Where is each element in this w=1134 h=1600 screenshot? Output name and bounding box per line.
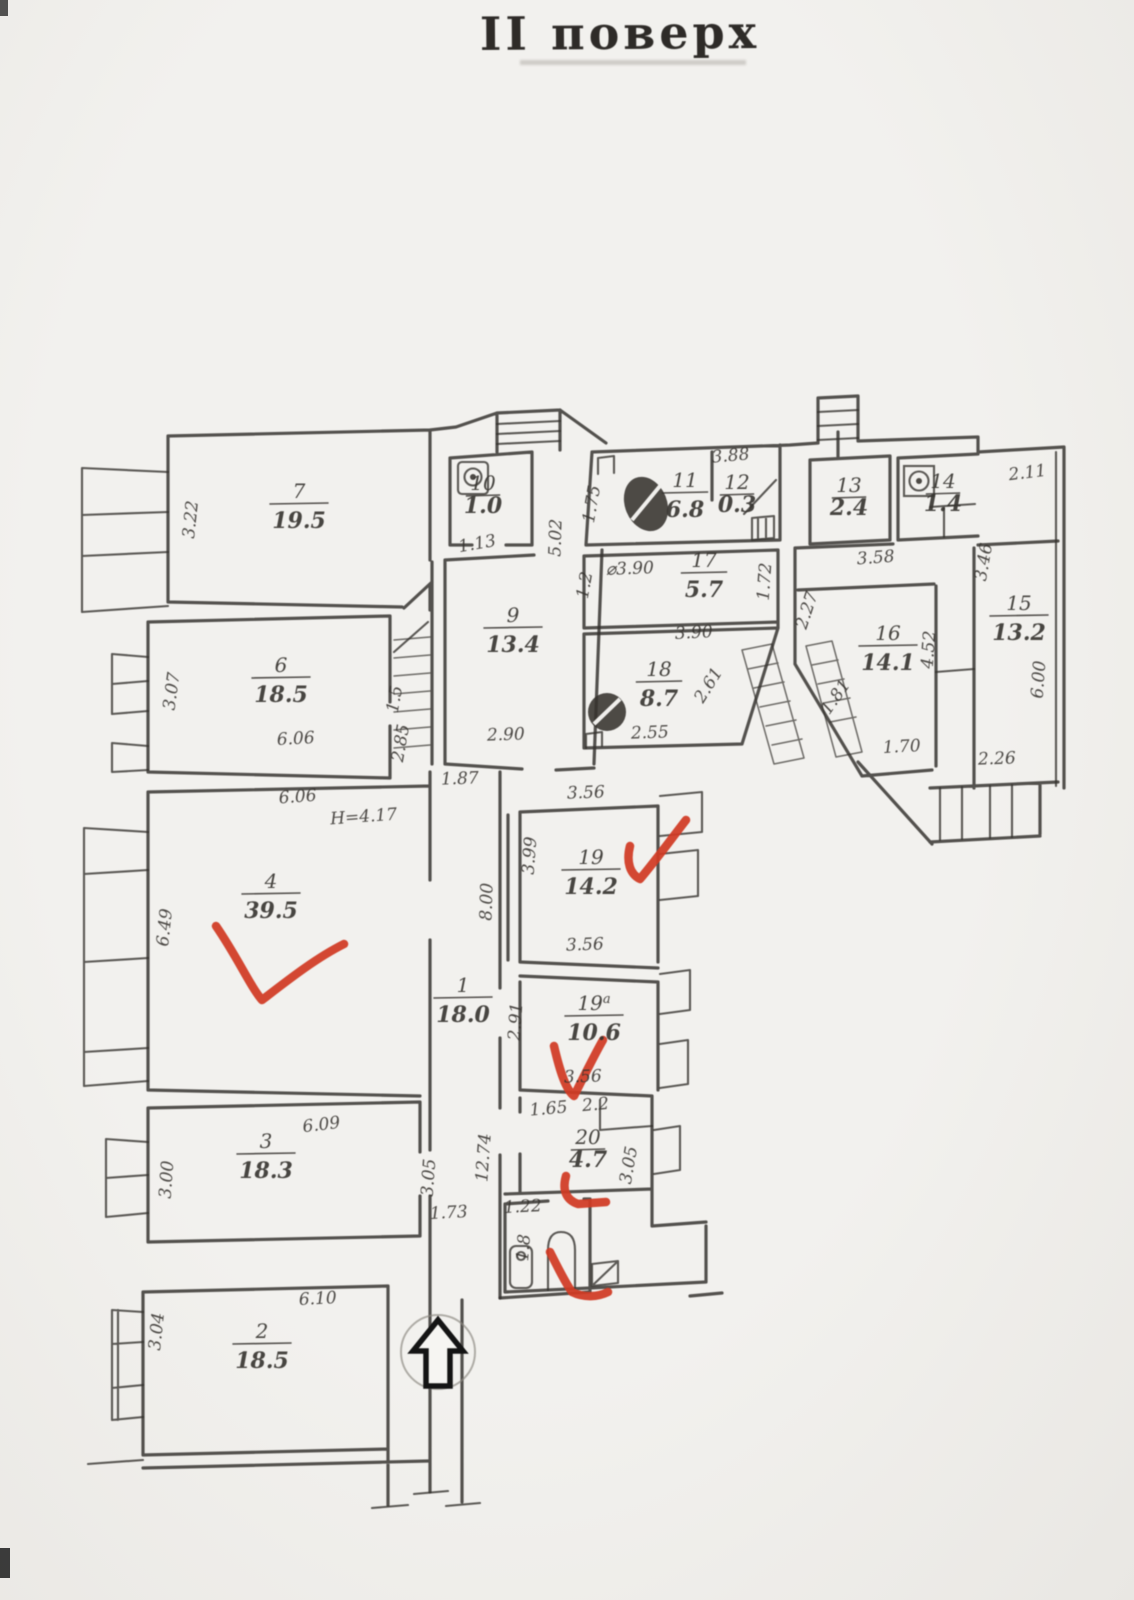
dimension-label: 6.10 — [298, 1288, 337, 1310]
room-area: 39.5 — [244, 898, 298, 924]
room-number: 9 — [507, 603, 520, 627]
dimension-label: 6.00 — [1028, 660, 1051, 699]
red-checkmark-room-4 — [216, 926, 344, 1000]
room-area: 14.1 — [861, 650, 915, 676]
room-number: 12 — [724, 470, 749, 494]
room-area: 5.7 — [685, 577, 724, 603]
room-label-underline — [232, 1343, 291, 1344]
room-label-underline — [433, 997, 492, 998]
room-number: 11 — [672, 468, 697, 492]
room-area: 1.4 — [924, 491, 962, 517]
dimension-label: 3.04 — [145, 1312, 169, 1352]
room-area: 0.3 — [718, 492, 756, 518]
room-label-underline — [662, 492, 708, 493]
dimension-label: 3.56 — [567, 782, 606, 803]
dimension-label: 1.2 — [573, 570, 597, 600]
dimension-label: 1.87 — [441, 768, 480, 789]
room-area: 1.0 — [464, 493, 503, 519]
dimension-label: 3.00 — [156, 1160, 179, 1199]
room-number: 20 — [574, 1125, 601, 1149]
dimension-label: 3.99 — [519, 836, 542, 875]
dimension-label: 1.70 — [882, 736, 921, 758]
dimension-label: 6.06 — [278, 786, 317, 809]
dimension-label: 1.8 — [513, 1233, 535, 1262]
fixture-icon — [588, 693, 626, 731]
room-number: 3 — [260, 1129, 273, 1153]
room-area: 19.5 — [272, 508, 326, 534]
dimension-label: 2.55 — [630, 722, 670, 743]
dimension-label: 6.49 — [153, 907, 177, 947]
dimension-label: 2.26 — [977, 748, 1017, 769]
room-number: 17 — [691, 548, 717, 572]
dimension-label: H=4.17 — [329, 805, 398, 830]
room-label-underline — [251, 677, 310, 678]
dimension-label: 2.61 — [690, 664, 728, 708]
room-area: 13.4 — [486, 632, 540, 658]
room-number: 18 — [646, 657, 671, 681]
room-label-underline — [858, 645, 917, 646]
room-number: 16 — [875, 621, 901, 645]
dimension-label: 4.52 — [918, 630, 941, 670]
room-area: 13.2 — [992, 620, 1046, 646]
room-number: 19a — [577, 991, 610, 1015]
room-area: 10.6 — [567, 1020, 621, 1046]
room-label-underline — [564, 1015, 623, 1016]
room-label-underline — [236, 1153, 295, 1154]
dimension-label: 1.72 — [754, 562, 777, 601]
room-area: 18.0 — [436, 1002, 490, 1028]
room-label-underline — [241, 893, 300, 894]
room-area: 18.5 — [254, 682, 308, 708]
dimension-label: 2.2 — [580, 1094, 610, 1116]
dimension-label: 1.5 — [383, 684, 407, 714]
dimension-label: 2.91 — [505, 1002, 528, 1042]
dimension-label: 5.02 — [545, 519, 566, 558]
room-number: 14 — [930, 469, 955, 493]
entrance-arrow-icon — [413, 1320, 463, 1386]
room-number: 10 — [470, 471, 496, 495]
dimension-label: 1.65 — [529, 1097, 568, 1120]
dimension-label: 1.73 — [429, 1202, 468, 1224]
room-label-underline — [269, 503, 328, 504]
room-label-underline — [681, 572, 727, 573]
dimension-label: 6.06 — [276, 728, 315, 750]
dimension-label: 2.85 — [388, 723, 414, 765]
room-label-underline — [636, 681, 682, 682]
dimension-label: 12.74 — [472, 1133, 495, 1183]
room-area: 8.7 — [639, 686, 679, 712]
dimension-label: 3.22 — [179, 500, 203, 540]
window-bays-and-stubs — [82, 410, 1056, 1508]
room-number: 6 — [275, 653, 288, 677]
dimension-label: 2.90 — [486, 724, 526, 745]
dimension-label: 3.05 — [418, 1158, 441, 1197]
dimension-label: 1.81 — [817, 676, 855, 718]
room-area: 4.7 — [569, 1147, 608, 1173]
room-number: 15 — [1006, 591, 1031, 615]
dimension-label: 3.90 — [674, 622, 713, 644]
dimension-label: 3.58 — [856, 547, 895, 570]
room-number: 7 — [293, 479, 306, 503]
stair-treads-and-hatch — [394, 637, 862, 764]
dimension-label: 3.56 — [566, 934, 605, 955]
room-area: 6.8 — [666, 497, 704, 523]
dimension-label: 3.07 — [160, 671, 185, 711]
room-label-underline — [561, 869, 620, 870]
dimension-label: 6.09 — [301, 1113, 341, 1137]
dimension-label: ⌀3.90 — [605, 558, 654, 580]
dimension-label: 1.22 — [503, 1196, 542, 1218]
room-number: 2 — [255, 1319, 269, 1343]
room-area: 18.3 — [239, 1158, 293, 1184]
dimension-label: 1.13 — [457, 531, 498, 557]
room-area: 14.2 — [564, 874, 618, 900]
walls-left-column — [143, 410, 606, 1505]
dimension-label: 1.75 — [579, 484, 605, 525]
dimension-label: 3.56 — [564, 1066, 603, 1087]
room-number: 4 — [264, 869, 278, 893]
room-area: 18.5 — [235, 1348, 289, 1374]
room-label-underline — [989, 615, 1048, 616]
room-label-underline — [483, 627, 542, 628]
dimension-label: 8.00 — [476, 882, 497, 921]
dimension-label: 3.88 — [711, 444, 751, 467]
room-number: 19 — [578, 845, 604, 869]
room-number: 1 — [457, 973, 470, 997]
dimension-label: 3.05 — [616, 1145, 642, 1186]
room-number: 13 — [836, 473, 861, 497]
dimension-label: 2.11 — [1006, 461, 1047, 486]
floor-plan: 3.223.076.061.52.856.06H=4.176.496.093.0… — [0, 0, 1134, 1600]
room-area: 2.4 — [829, 495, 868, 521]
